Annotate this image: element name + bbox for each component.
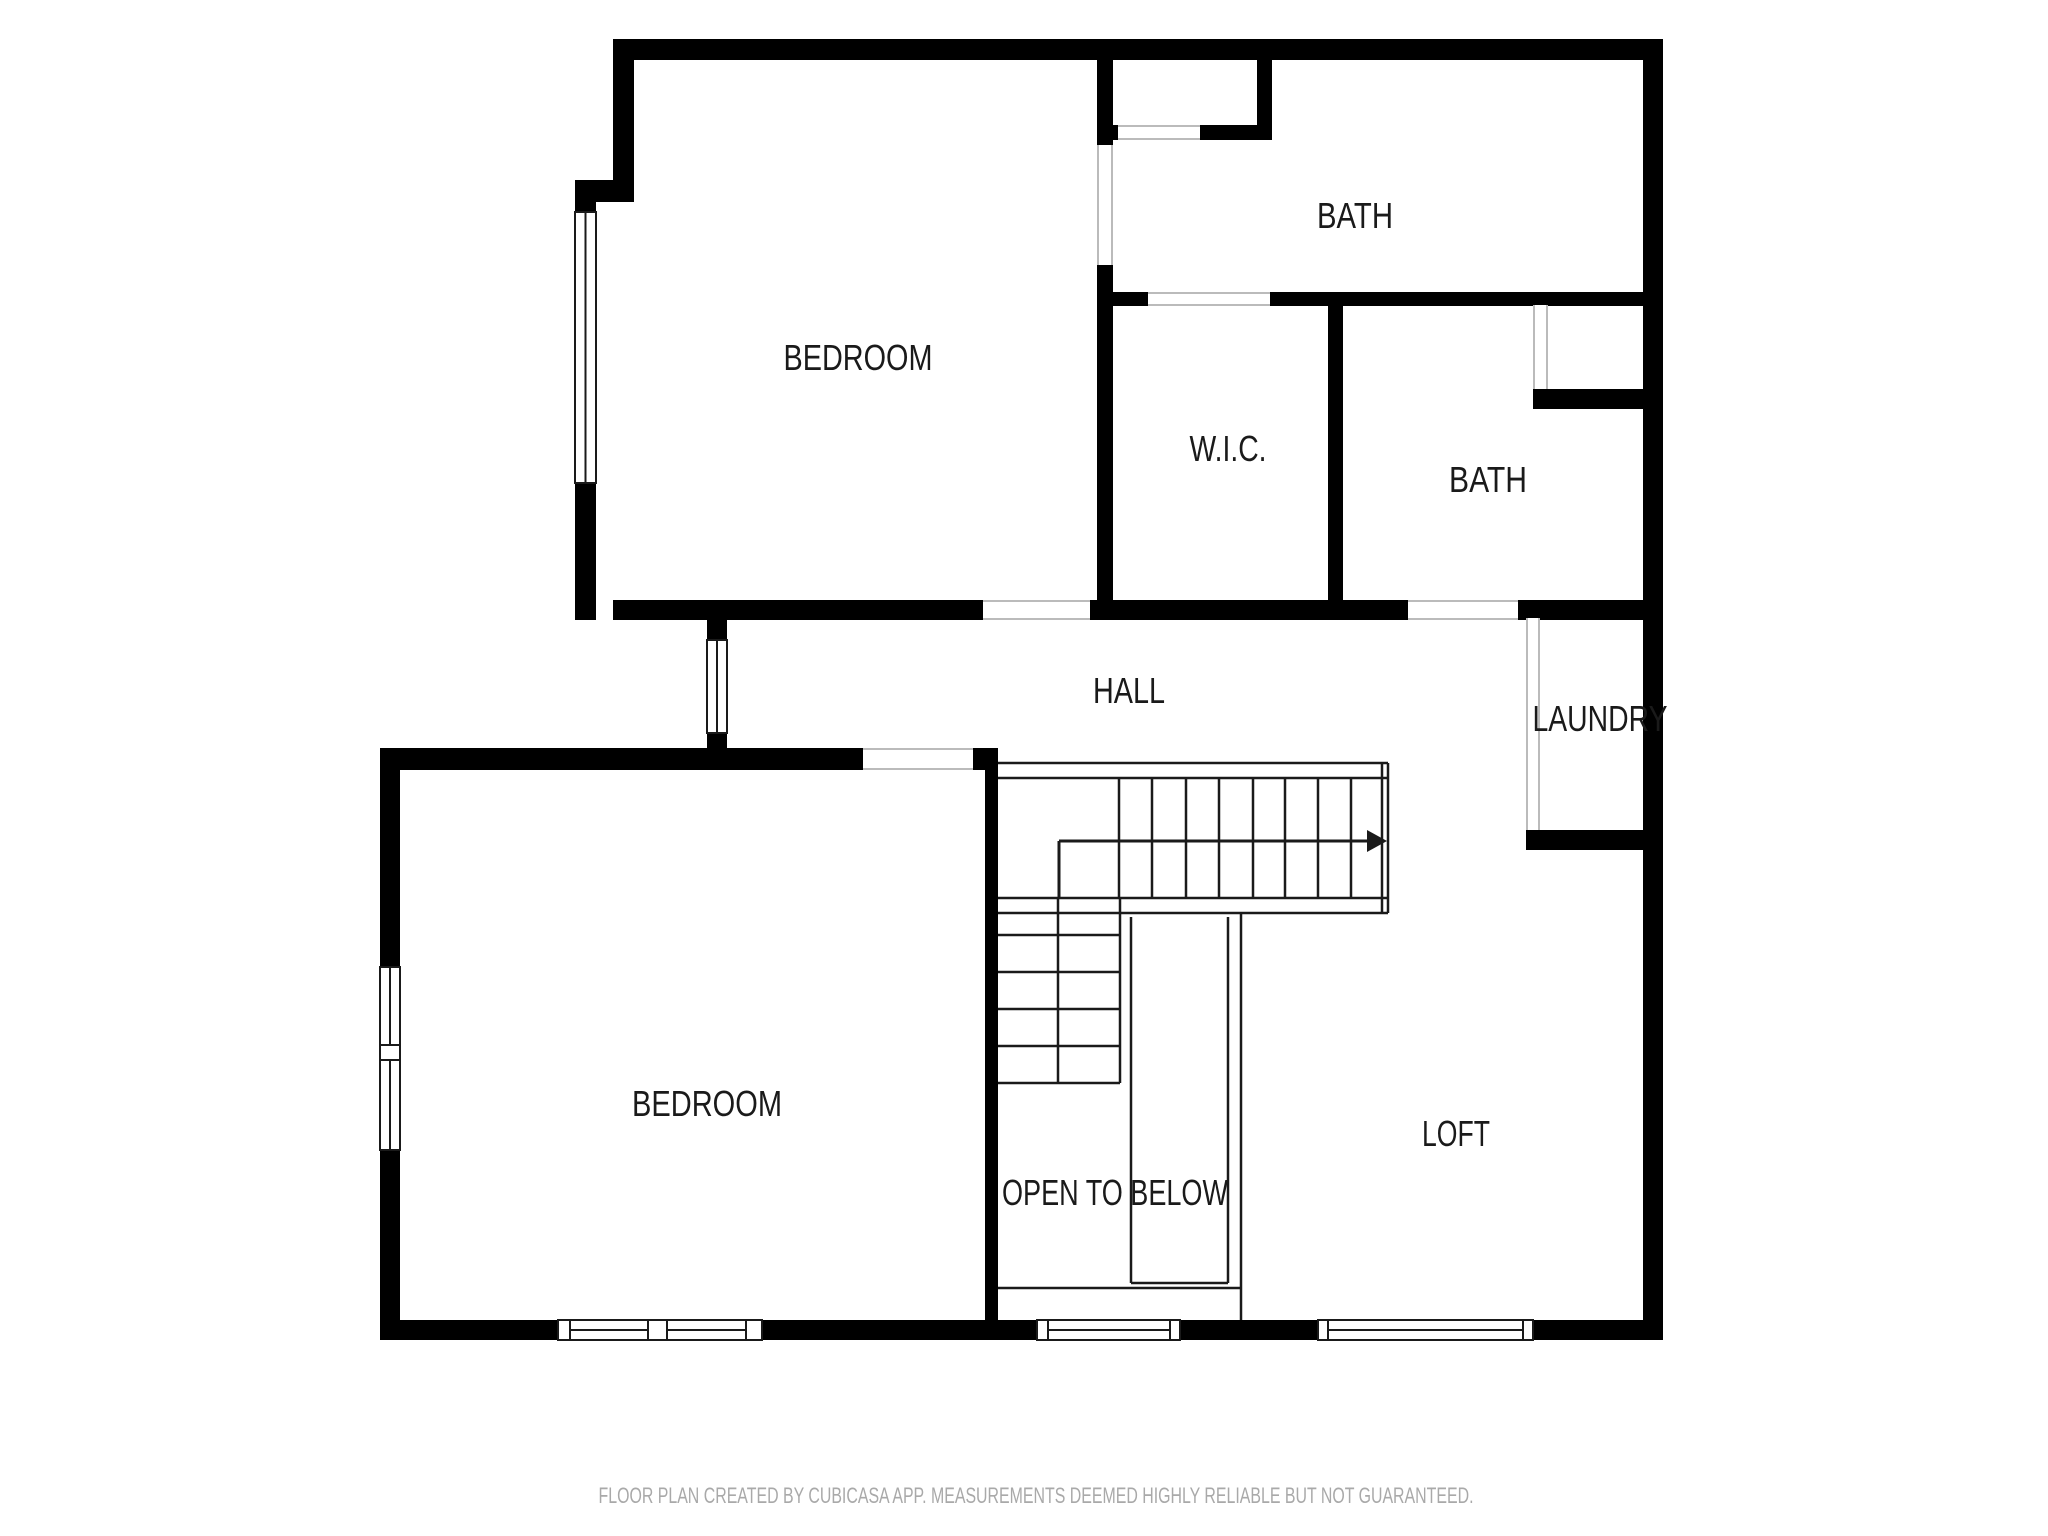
room-label-laundry: LAUNDRY: [1533, 698, 1668, 739]
room-label-wic: W.I.C.: [1190, 428, 1267, 469]
door-opening: [1097, 145, 1113, 265]
window-post: [746, 1320, 762, 1340]
footer-layer: FLOOR PLAN CREATED BY CUBICASA APP. MEAS…: [599, 1483, 1474, 1508]
room-label-bedroom-bottom: BEDROOM: [632, 1083, 782, 1124]
window-post: [1523, 1320, 1533, 1340]
window-post: [1318, 1320, 1328, 1340]
windows-layer: [380, 212, 1533, 1340]
window-post: [380, 1045, 400, 1060]
door-opening: [1533, 305, 1548, 389]
wall: [1533, 389, 1643, 409]
room-label-loft: LOFT: [1422, 1113, 1490, 1154]
wall: [613, 39, 1663, 60]
room-label-bath-top: BATH: [1317, 195, 1393, 236]
door-opening: [1118, 125, 1200, 140]
floor-plan-svg: BEDROOMBATHW.I.C.BATHHALLLAUNDRYBEDROOMO…: [0, 0, 2048, 1536]
wall: [1328, 305, 1343, 600]
wall: [1526, 830, 1643, 850]
room-label-open-to-below: OPEN TO BELOW: [1002, 1172, 1228, 1213]
wall: [1643, 39, 1663, 1340]
door-opening: [1148, 292, 1270, 306]
door-opening: [983, 600, 1090, 620]
room-label-bedroom-top: BEDROOM: [784, 337, 933, 378]
window-post: [558, 1320, 570, 1340]
door-opening: [1408, 600, 1518, 620]
room-labels-layer: BEDROOMBATHW.I.C.BATHHALLLAUNDRYBEDROOMO…: [632, 195, 1668, 1213]
wall: [575, 180, 634, 202]
wall: [985, 748, 998, 1340]
door-opening: [863, 748, 973, 770]
floor-plan-page: BEDROOMBATHW.I.C.BATHHALLLAUNDRYBEDROOMO…: [0, 0, 2048, 1536]
stairs-layer: [998, 763, 1388, 1320]
wall: [613, 39, 634, 202]
wall: [1097, 60, 1113, 145]
room-label-bath-middle: BATH: [1449, 459, 1527, 500]
window-post: [1170, 1320, 1180, 1340]
wall: [1257, 60, 1272, 140]
window-post: [1037, 1320, 1048, 1340]
room-label-hall: HALL: [1093, 670, 1165, 711]
window-post: [648, 1320, 667, 1340]
footer-disclaimer-text: FLOOR PLAN CREATED BY CUBICASA APP. MEAS…: [599, 1483, 1474, 1508]
stair-direction-arrow-head: [1367, 830, 1387, 852]
door-openings-layer: [863, 125, 1548, 830]
